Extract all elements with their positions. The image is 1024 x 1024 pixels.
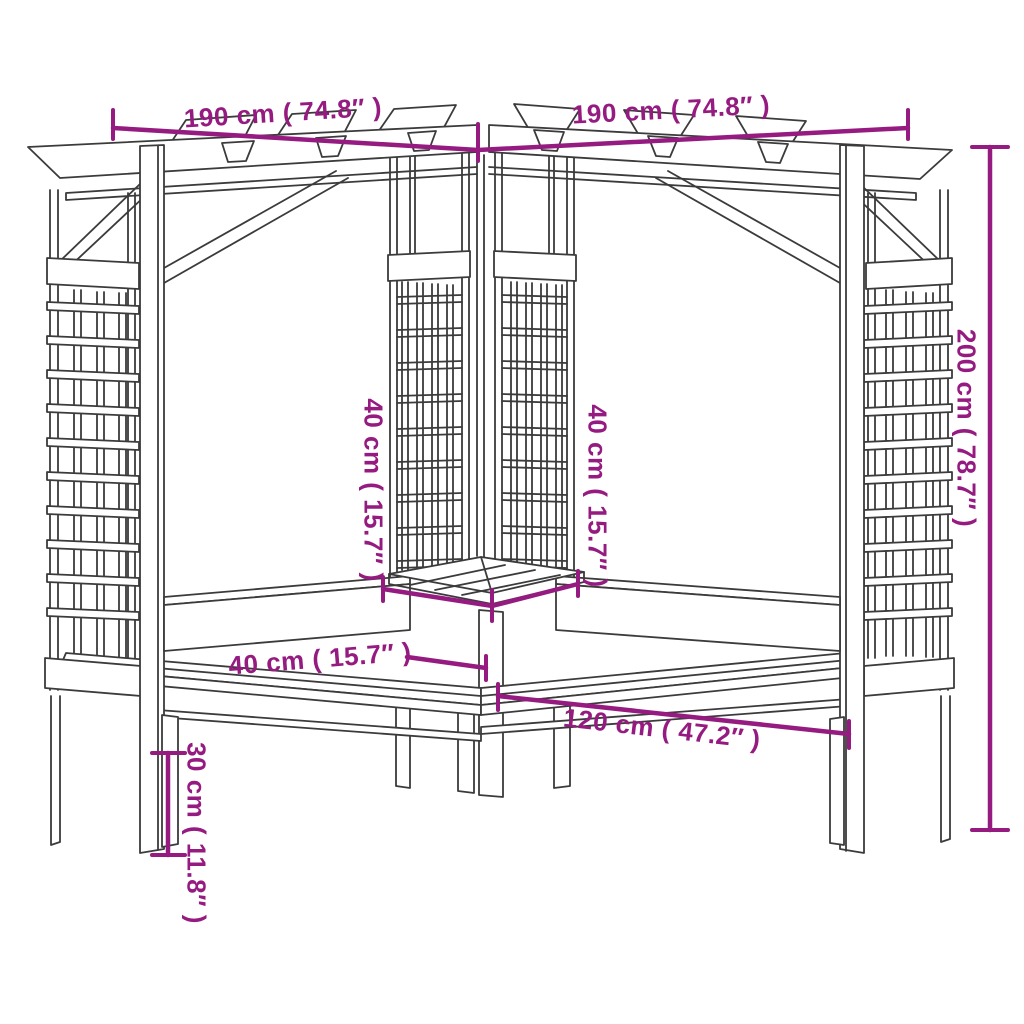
dim-label-total-height: 200 cm ( 78.7″ ) [951,329,982,527]
corner-table [389,557,584,604]
dimension-diagram: 190 cm ( 74.8″ ) 190 cm ( 74.8″ ) 200 cm… [0,0,1024,1024]
left-post [140,145,164,853]
center-left-trellis-panel [388,151,470,587]
dim-line-bench-depth [407,657,486,668]
left-side-trellis [47,190,139,690]
corner-post-edge [477,155,484,560]
dim-label-center-right-trellis-width: 40 cm ( 15.7″ ) [582,404,613,587]
center-right-trellis-panel [477,151,576,587]
dim-label-bench-seat-height: 30 cm ( 11.8″ ) [181,742,212,924]
right-side-trellis [864,190,952,690]
pergola-line-drawing [0,0,1024,1024]
dim-label-center-left-trellis-width: 40 cm ( 15.7″ ) [358,398,389,581]
